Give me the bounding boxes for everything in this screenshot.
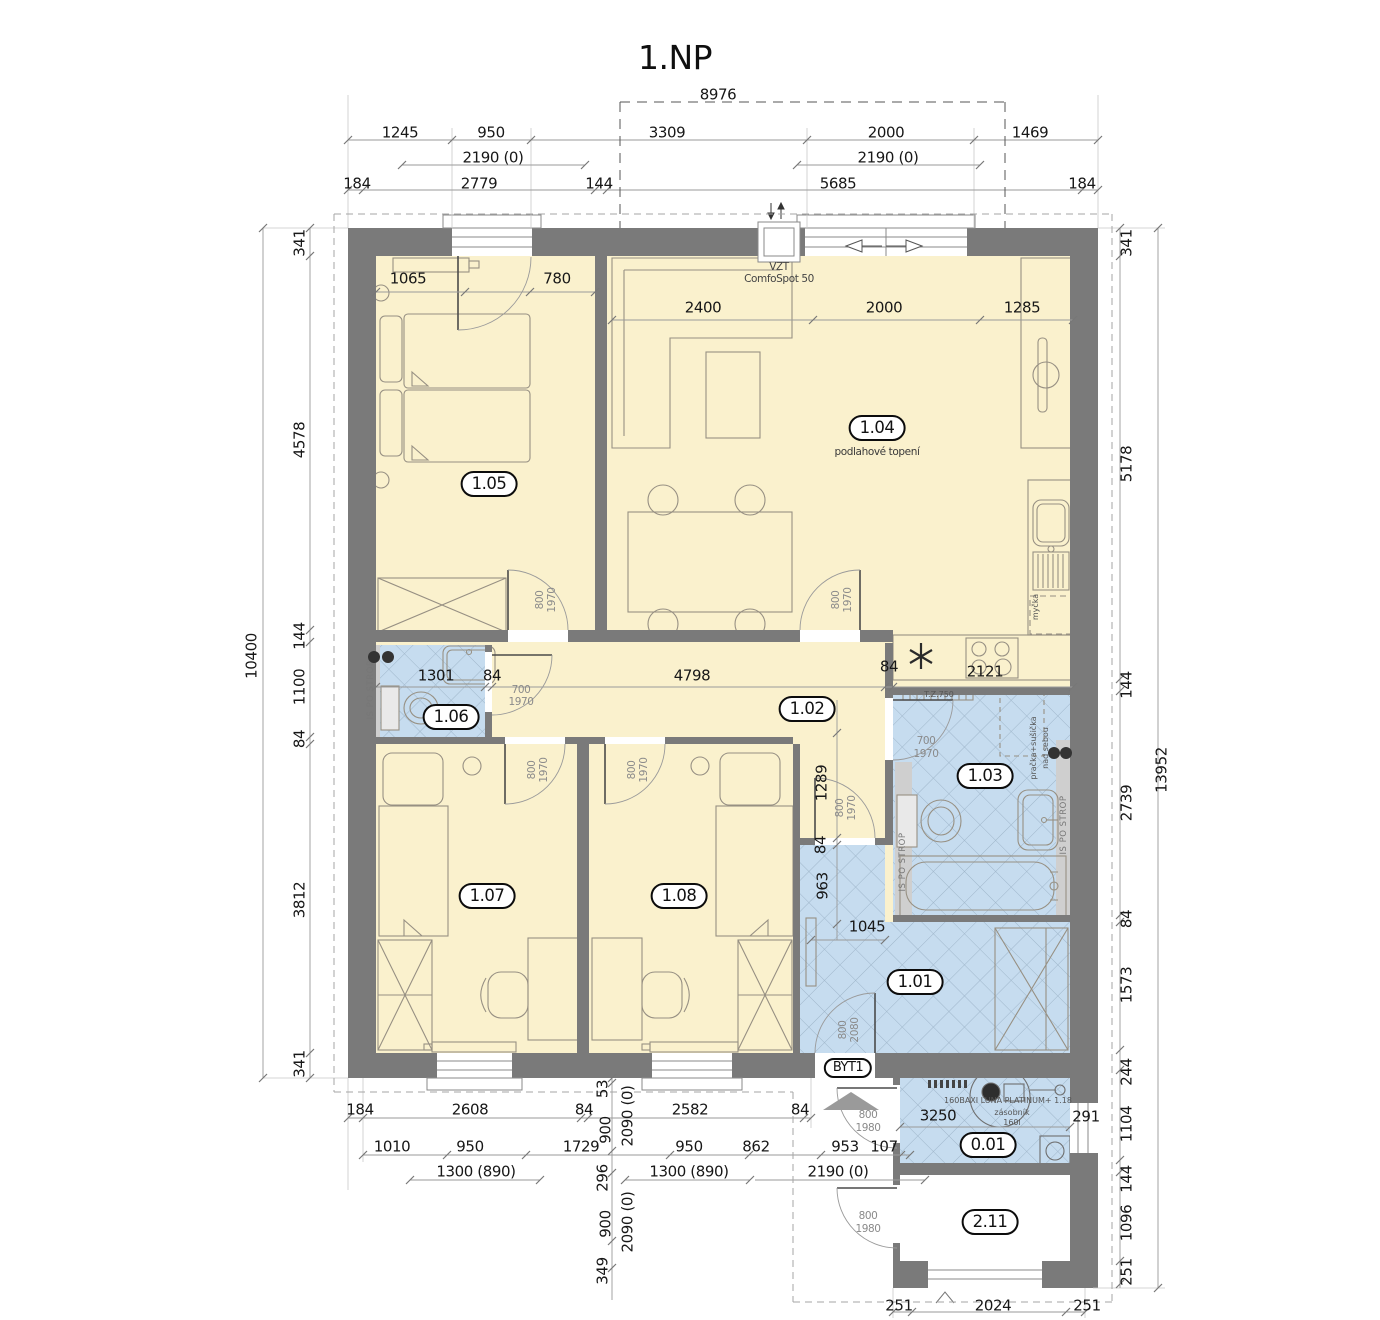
vzt-label: ComfoSpot 50	[744, 274, 814, 285]
dim-label: 251	[1073, 1299, 1100, 1314]
door-size-label: 2080	[850, 1017, 861, 1042]
dim-label: 950	[675, 1140, 702, 1155]
dim-label: 1104	[1120, 1106, 1135, 1143]
room-label-102: 1.02	[779, 696, 836, 722]
dim-label: 144	[1120, 671, 1135, 698]
dim-label: 1245	[382, 126, 419, 141]
room-label-105: 1.05	[461, 471, 518, 497]
door-size-label: 700	[512, 685, 531, 696]
dim-label: 2190 (0)	[858, 151, 919, 166]
ceiling-note: IS PO STROP	[899, 833, 908, 892]
door-size-label: 1970	[847, 795, 858, 820]
dim-label: 244	[1120, 1058, 1135, 1085]
dim-label: 8976	[700, 88, 737, 103]
door-size-label: 700	[917, 736, 936, 747]
dim-label: 1573	[1120, 967, 1135, 1004]
dim-label: 900	[599, 1210, 614, 1237]
dim-label: 2582	[672, 1103, 709, 1118]
dim-label: 1469	[1012, 126, 1049, 141]
dim-label: 291	[1072, 1110, 1099, 1125]
dim-label: 780	[543, 272, 570, 287]
dim-label: 53	[596, 1080, 611, 1098]
dim-label: 3812	[293, 882, 308, 919]
dim-label: 2000	[866, 301, 903, 316]
porch-step-icon	[936, 1292, 954, 1303]
door-size-label: 800	[835, 799, 846, 818]
tank-label: zásobník	[994, 1109, 1029, 1117]
room-label-001: 0.01	[960, 1132, 1017, 1158]
door-size-label: 800	[535, 591, 546, 610]
room-label-211: 2.11	[962, 1209, 1019, 1235]
dim-label: 963	[816, 872, 831, 899]
dim-label: 1300 (890)	[649, 1165, 728, 1180]
dim-label: 1010	[374, 1140, 411, 1155]
floorplan-page: 1.NP 8976 1245 950 3309 2000 1469 2190 (…	[0, 0, 1380, 1320]
washer-note: pračka+sušička	[1030, 716, 1038, 779]
dim-label: 2400	[685, 301, 722, 316]
door-size-label: 800	[627, 761, 638, 780]
dim-label: 341	[1120, 229, 1135, 256]
room-label-101: 1.01	[887, 969, 944, 995]
dim-label: 84	[814, 836, 829, 854]
dim-label: 144	[585, 177, 612, 192]
dim-label: 144	[1120, 1165, 1135, 1192]
dim-label: 2090 (0)	[621, 1086, 636, 1147]
dim-label: 296	[596, 1164, 611, 1191]
dim-label: 1065	[390, 272, 427, 287]
floor-heating-note: podlahové topení	[834, 447, 919, 458]
dim-label: 1729	[563, 1140, 600, 1155]
door-size-label: 1970	[547, 587, 558, 612]
dim-label: 2024	[975, 1299, 1012, 1314]
dim-label: 251	[1120, 1258, 1135, 1285]
dim-label: 84	[880, 660, 898, 675]
door-size-label: 800	[859, 1110, 878, 1121]
door-size-label: 1970	[508, 697, 533, 708]
ceiling-note: IS PO STROP	[1060, 796, 1069, 855]
vzt-unit-icon	[758, 222, 800, 262]
boiler-label: 160BAXI LUNA PLATINUM+ 1.18	[944, 1097, 1072, 1105]
dim-label: 107	[870, 1140, 897, 1155]
room-label-104: 1.04	[849, 415, 906, 441]
door-size-label: 1970	[843, 587, 854, 612]
dim-label: 950	[456, 1140, 483, 1155]
dim-label: 84	[791, 1103, 809, 1118]
room-label-106: 1.06	[423, 704, 480, 730]
page-title: 1.NP	[638, 38, 712, 77]
door-size-label: 1970	[639, 757, 650, 782]
dim-label: 10400	[245, 633, 260, 679]
room-label-108: 1.08	[651, 883, 708, 909]
washer-note: nad sebou	[1042, 727, 1050, 769]
dim-label: 184	[1068, 177, 1095, 192]
door-size-label: 800	[859, 1211, 878, 1222]
door-size-label: 1970	[913, 749, 938, 760]
dim-label: 5178	[1120, 446, 1135, 483]
ceiling-note: IS PO STROP	[367, 661, 376, 720]
dim-label: 251	[885, 1299, 912, 1314]
dim-label: 900	[599, 1116, 614, 1143]
room-label-107: 1.07	[459, 883, 516, 909]
room-label-103: 1.03	[957, 763, 1014, 789]
dim-label: 2121	[967, 665, 1004, 680]
dim-label: 341	[293, 229, 308, 256]
vzt-arrows-icon	[768, 203, 784, 219]
dim-label: 1285	[1004, 301, 1041, 316]
door-size-label: 800	[831, 591, 842, 610]
dim-label: 1289	[815, 765, 830, 802]
dim-label: 84	[1120, 910, 1135, 928]
dim-label: 84	[293, 730, 308, 748]
dim-label: 2779	[461, 177, 498, 192]
dim-label: 2000	[868, 126, 905, 141]
dim-label: 1096	[1120, 1205, 1135, 1242]
dim-label: 862	[742, 1140, 769, 1155]
unit-label-byt1: BYT1	[824, 1058, 872, 1078]
dim-label: 953	[831, 1140, 858, 1155]
door-size-label: 800	[527, 761, 538, 780]
door-size-label: 1980	[855, 1224, 880, 1235]
towel-radiator-label: T.Z.750	[924, 691, 954, 699]
dim-label: 144	[293, 622, 308, 649]
dim-label: 349	[596, 1257, 611, 1284]
dim-label: 4798	[674, 669, 711, 684]
dim-label: 2739	[1120, 785, 1135, 822]
entrance-canopy-icon	[823, 1092, 879, 1110]
door-size-label: 800	[838, 1021, 849, 1040]
dim-label: 1045	[849, 920, 886, 935]
dim-label: 184	[346, 1103, 373, 1118]
dim-label: 2190 (0)	[808, 1165, 869, 1180]
dim-label: 2608	[452, 1103, 489, 1118]
dim-label: 1301	[418, 669, 455, 684]
dim-label: 3250	[920, 1109, 957, 1124]
dim-label: 5685	[820, 177, 857, 192]
dim-label: 341	[293, 1050, 308, 1077]
dim-label: 184	[343, 177, 370, 192]
dim-label: 3309	[649, 126, 686, 141]
door-size-label: 1970	[539, 757, 550, 782]
vzt-label: VZT	[769, 262, 789, 273]
floorplan-drawing	[0, 0, 1380, 1320]
dim-label: 950	[477, 126, 504, 141]
dim-label: 1100	[293, 669, 308, 706]
dishwasher-label: myčka	[1032, 594, 1040, 620]
door-size-label: 1980	[855, 1123, 880, 1134]
dim-label: 1300 (890)	[436, 1165, 515, 1180]
dim-label: 84	[575, 1103, 593, 1118]
dim-label: 2190 (0)	[463, 151, 524, 166]
dim-label: 4578	[293, 422, 308, 459]
dim-label: 13952	[1155, 747, 1170, 793]
dim-label: 84	[483, 669, 501, 684]
tank-label: 160l	[1003, 1119, 1021, 1127]
dim-label: 2090 (0)	[621, 1192, 636, 1253]
